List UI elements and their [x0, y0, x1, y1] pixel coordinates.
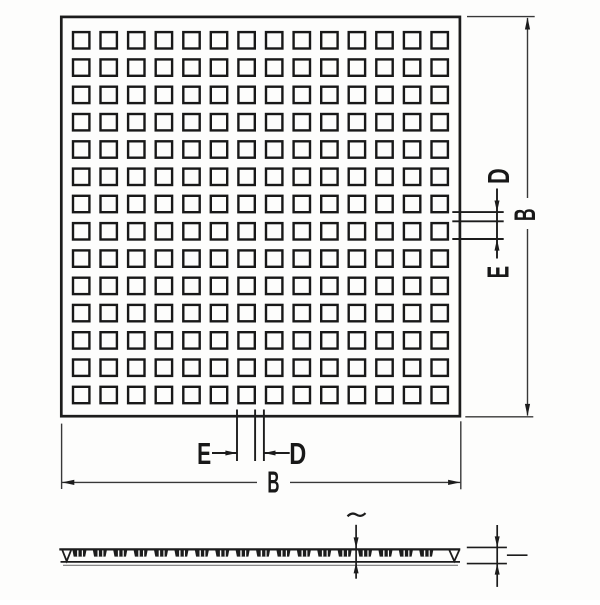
svg-text:E: E	[482, 266, 516, 278]
svg-text:D: D	[289, 436, 306, 471]
svg-text:B: B	[267, 466, 279, 499]
svg-text:E: E	[197, 436, 211, 471]
svg-text:B: B	[509, 208, 542, 221]
svg-text:D: D	[481, 168, 516, 184]
